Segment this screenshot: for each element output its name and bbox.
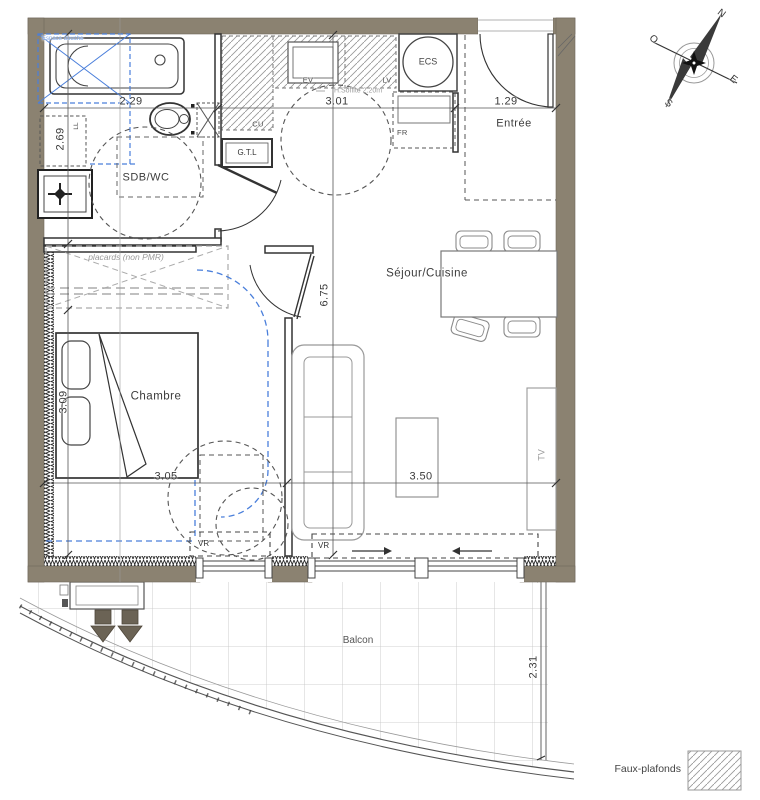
vr-chambre-label: VR [198, 540, 209, 548]
sofa [292, 345, 364, 540]
dim-balcon-depth: 2.31 [529, 655, 540, 678]
sink-label: EV [303, 76, 314, 84]
room-entree: Entrée [496, 119, 531, 130]
dishwasher-label: LV [382, 76, 391, 84]
chair [504, 316, 540, 337]
left-arrow-icon [452, 547, 460, 555]
dim-sdb-width: 2.29 [119, 97, 142, 108]
pmr-zone-chambre [200, 455, 263, 541]
dim-sejour-width: 3.50 [409, 472, 432, 483]
sejour-bay-window [308, 556, 524, 582]
legend-faux-plafonds: Faux-plafonds [563, 764, 681, 775]
compass-rose [653, 13, 737, 107]
right-arrow-icon [384, 547, 392, 555]
entry-door [478, 17, 553, 107]
sejour-door [250, 254, 314, 319]
faux-plafonds-swatch [688, 751, 741, 790]
washbasin [38, 170, 92, 218]
dim-cuisine-width: 3.01 [325, 97, 348, 108]
vr-sejour-label: VR [318, 542, 329, 550]
dim-sejour-height: 6.75 [320, 283, 331, 306]
fridge [393, 92, 455, 148]
room-chambre: Chambre [131, 391, 182, 403]
dining-table [441, 251, 557, 317]
floor-plan: Espace douche 2.29 2.69 3.01 1.29 Entrée… [0, 0, 760, 800]
electrical-panel-label: G.T.L [237, 149, 256, 157]
balcony [20, 578, 574, 779]
shower-zone-label: Espace douche [42, 36, 83, 42]
sdb-door [218, 165, 281, 231]
floor-plan-drawing [0, 0, 760, 800]
placards-label: placards (non PMR) [88, 253, 164, 262]
pillow [62, 341, 90, 389]
ceiling-height-note: H.Soffite 2.20m [334, 88, 382, 95]
dim-entree-width: 1.29 [494, 97, 517, 108]
room-sdb-wc: SDB/WC [123, 173, 170, 184]
cooktop-label: CU [252, 120, 263, 128]
dining-set [441, 231, 557, 343]
water-heater-label: ECS [419, 58, 438, 67]
chair [504, 231, 540, 252]
fridge-label: FR [397, 129, 408, 137]
chair [456, 231, 492, 252]
room-balcon: Balcon [343, 636, 374, 646]
tv-label: TV [538, 449, 547, 461]
room-sejour-cuisine: Séjour/Cuisine [386, 268, 468, 280]
dim-chambre-height: 3.09 [59, 390, 70, 413]
dim-chambre-width: 3.05 [154, 472, 177, 483]
dim-sdb-height: 2.69 [56, 127, 67, 150]
bed [56, 333, 198, 478]
coffee-table [396, 418, 438, 497]
turning-circle-chambre-2 [216, 488, 288, 560]
bathtub [50, 38, 184, 94]
washing-machine-label: LL [74, 122, 81, 129]
chambre-window [196, 556, 272, 582]
